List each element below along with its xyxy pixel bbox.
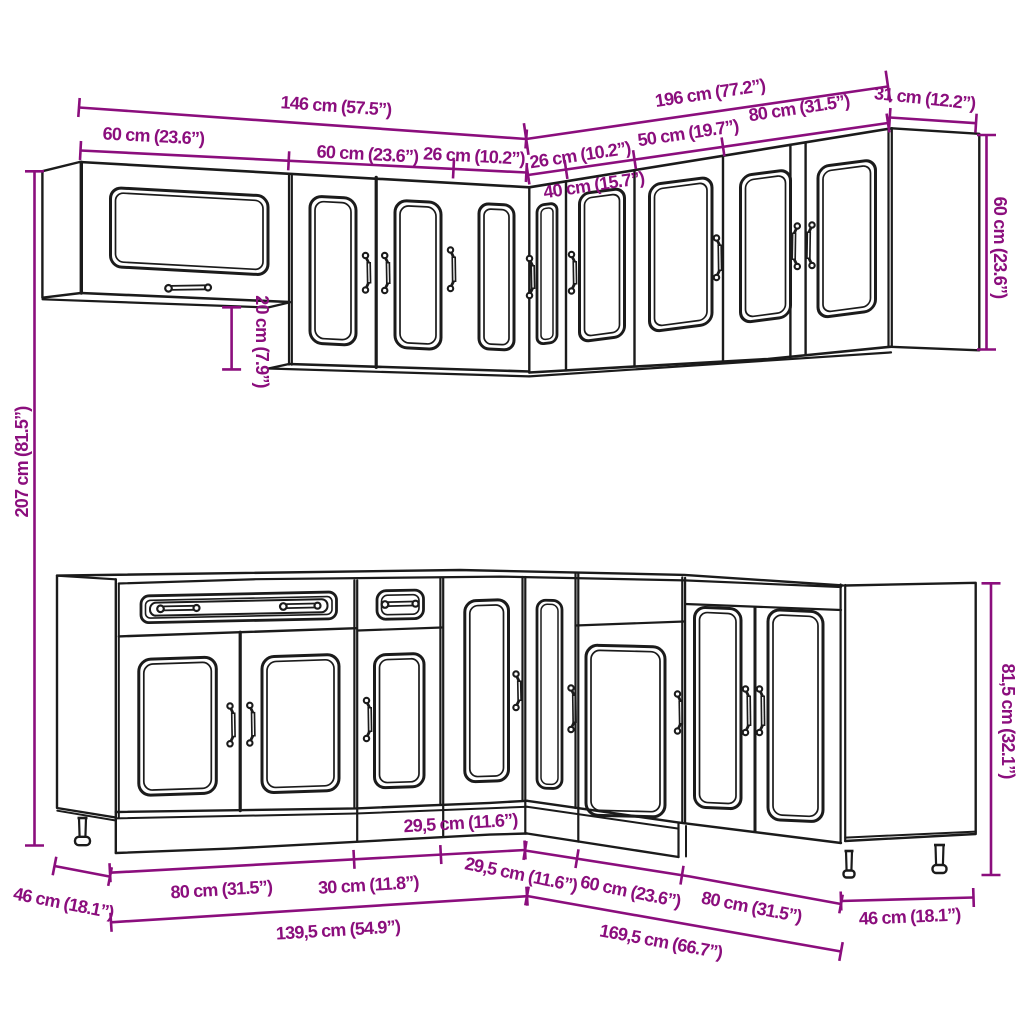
svg-text:207 cm (81.5”): 207 cm (81.5”) — [12, 406, 32, 518]
svg-text:20 cm (7.9”): 20 cm (7.9”) — [252, 295, 272, 388]
svg-text:81,5 cm (32.1”): 81,5 cm (32.1”) — [998, 663, 1018, 779]
svg-text:60 cm (23.6”): 60 cm (23.6”) — [990, 197, 1010, 299]
